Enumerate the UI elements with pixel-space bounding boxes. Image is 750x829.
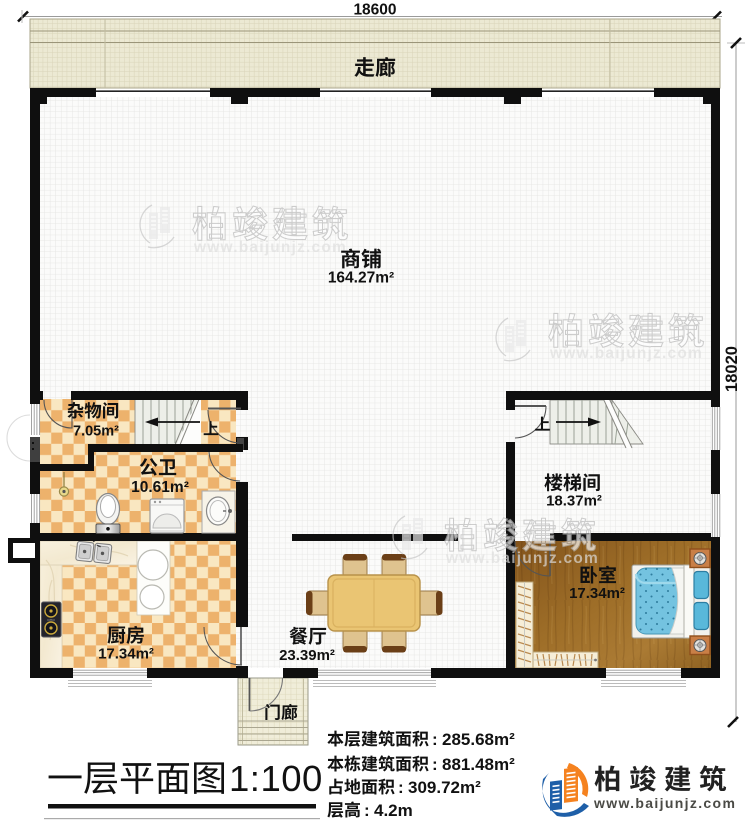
svg-text:309.72m²: 309.72m² xyxy=(408,778,481,797)
svg-text:www.baijunjz.com: www.baijunjz.com xyxy=(193,239,347,256)
svg-text:www.baijunjz.com: www.baijunjz.com xyxy=(445,550,599,567)
svg-text:18600: 18600 xyxy=(353,2,396,19)
svg-text:18020: 18020 xyxy=(723,346,741,392)
svg-text:164.27m²: 164.27m² xyxy=(328,270,394,287)
svg-text::: : xyxy=(432,730,438,749)
svg-text:4.2m: 4.2m xyxy=(374,801,413,820)
svg-text:www.baijunjz.com: www.baijunjz.com xyxy=(549,345,703,362)
svg-text:285.68m²: 285.68m² xyxy=(442,730,515,749)
svg-text:10.61m²: 10.61m² xyxy=(131,479,189,496)
svg-text:17.34m²: 17.34m² xyxy=(569,585,625,602)
svg-text::: : xyxy=(364,801,370,820)
svg-text:881.48m²: 881.48m² xyxy=(442,755,515,774)
svg-text::: : xyxy=(432,755,438,774)
svg-text:18.37m²: 18.37m² xyxy=(546,493,602,510)
svg-text:23.39m²: 23.39m² xyxy=(279,647,335,664)
svg-text:7.05m²: 7.05m² xyxy=(73,424,119,440)
svg-text:17.34m²: 17.34m² xyxy=(98,646,154,663)
svg-text:www.baijunjz.com: www.baijunjz.com xyxy=(593,795,737,811)
svg-text:1:100: 1:100 xyxy=(229,758,323,799)
svg-text::: : xyxy=(398,778,404,797)
